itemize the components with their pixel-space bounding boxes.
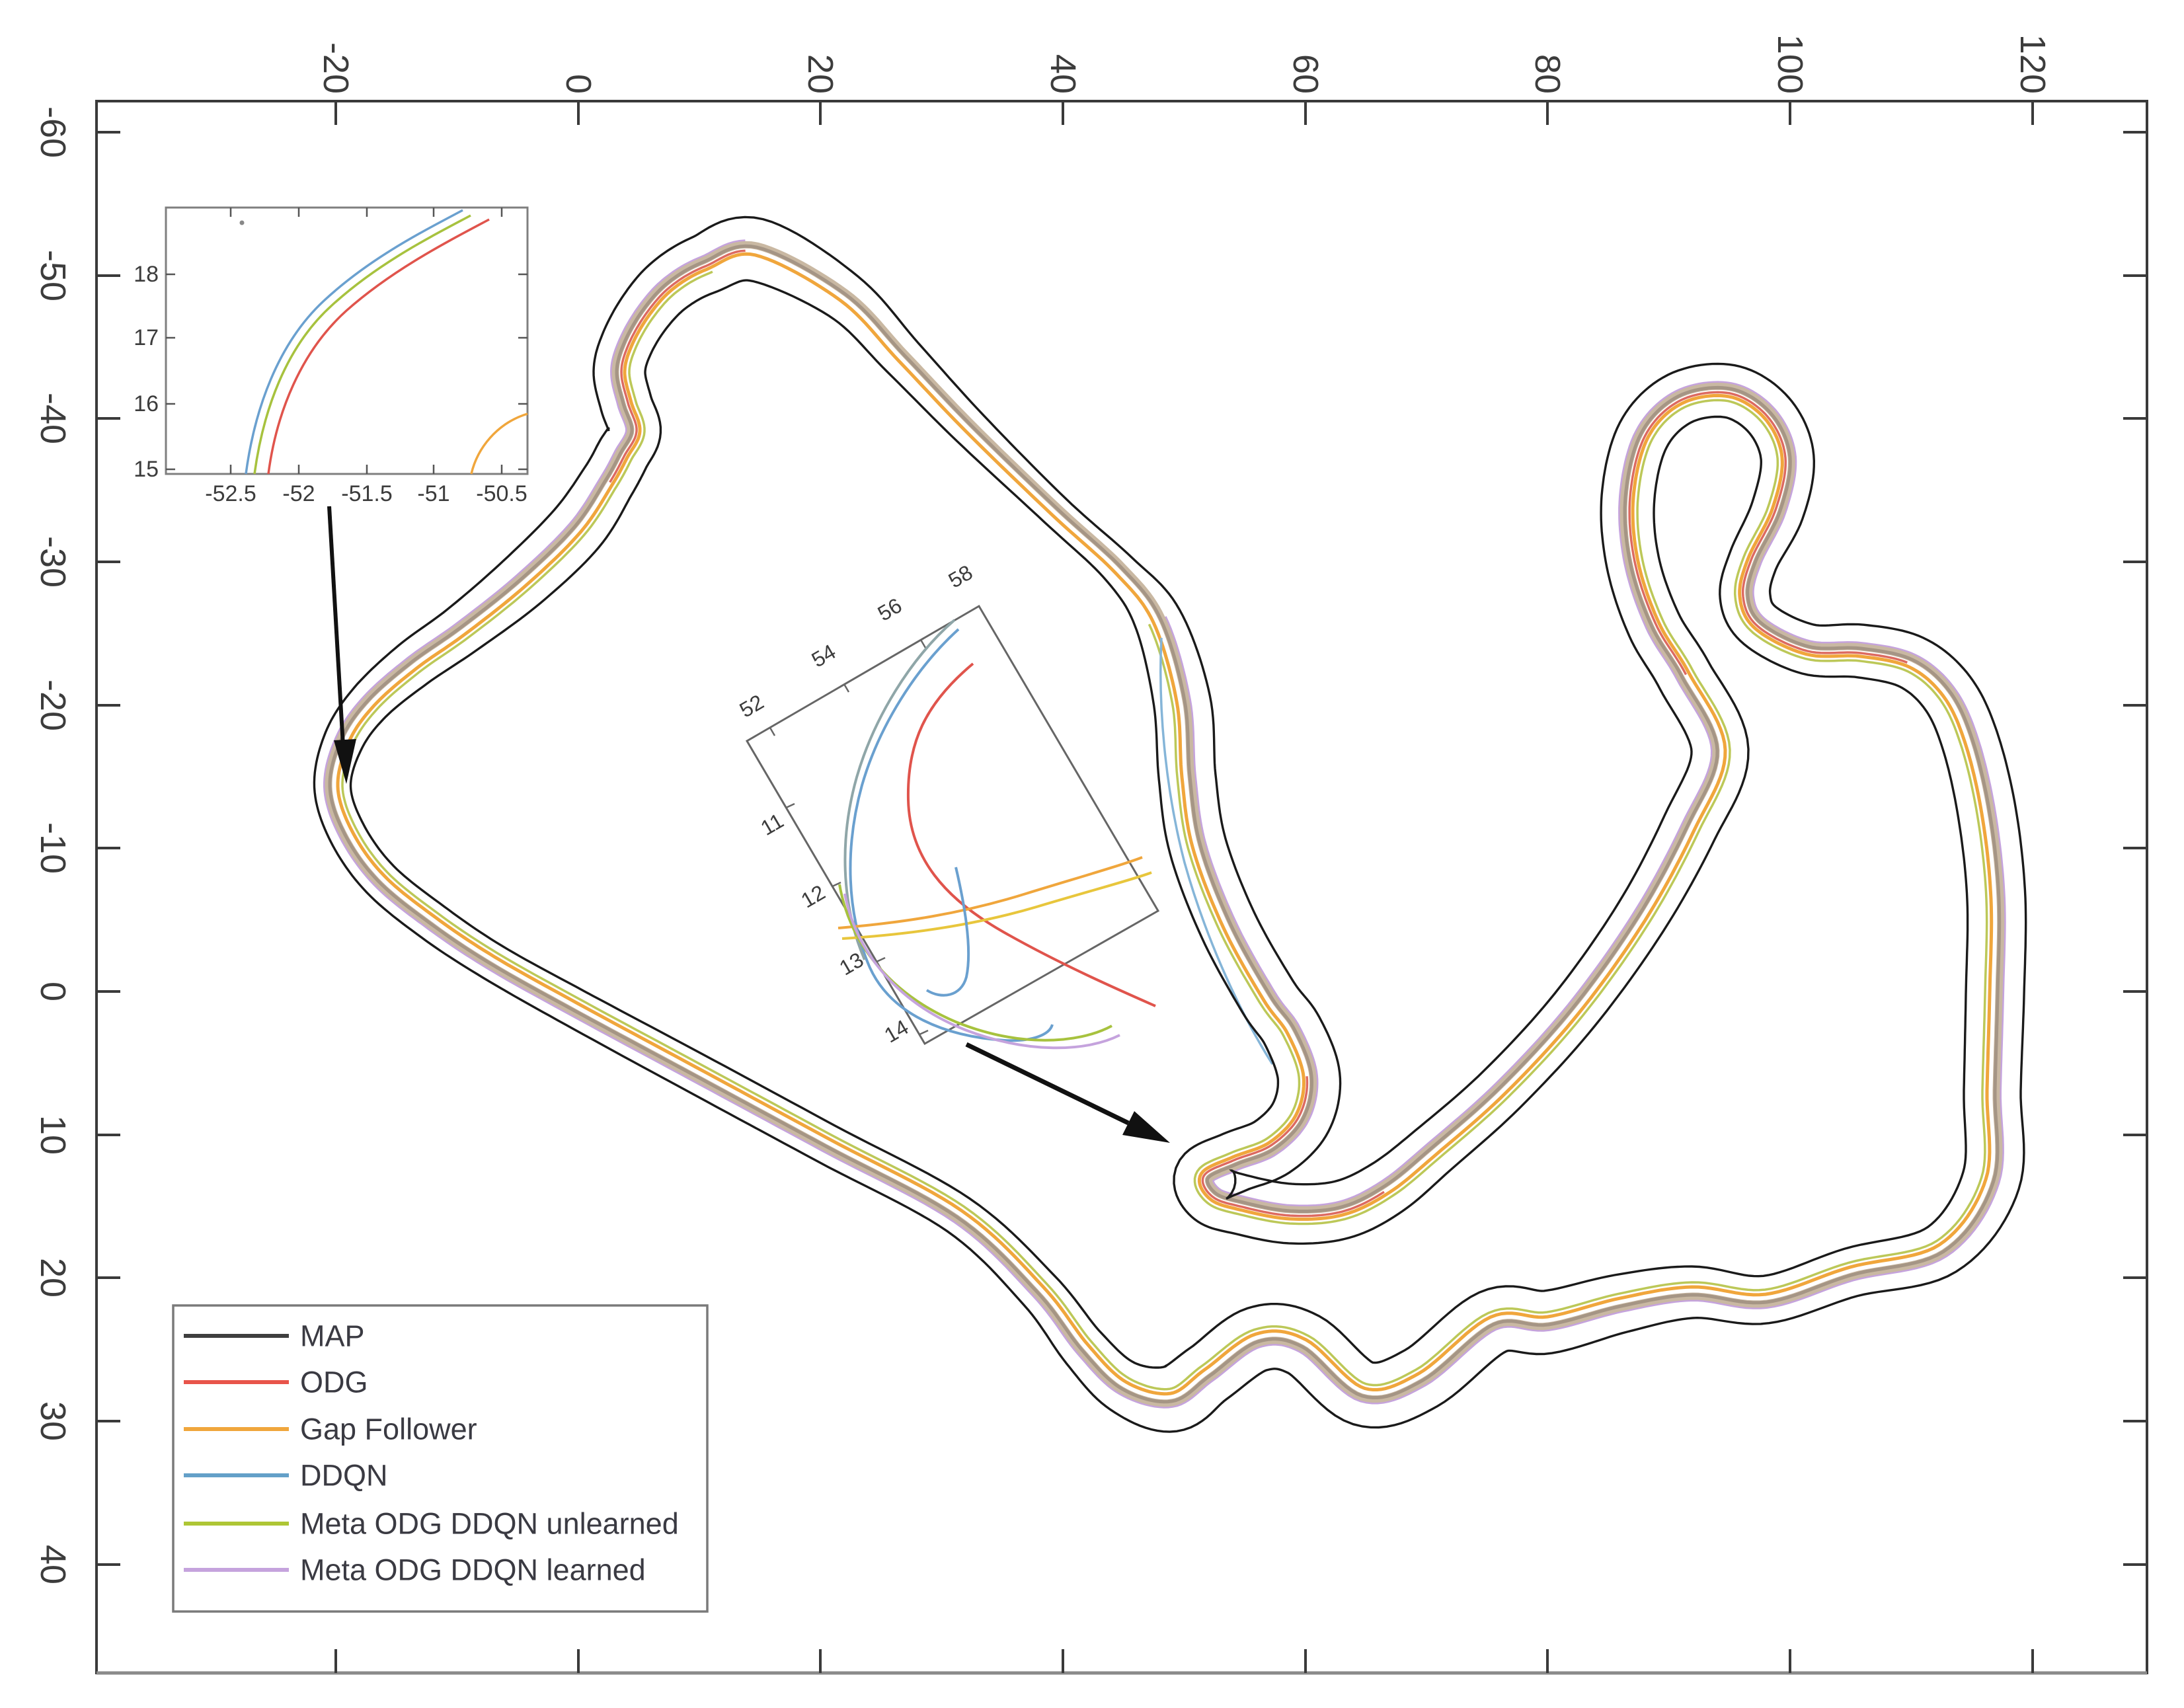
svg-text:-52: -52 bbox=[282, 481, 315, 506]
svg-text:0: 0 bbox=[33, 982, 73, 1001]
svg-text:17: 17 bbox=[134, 325, 159, 350]
svg-text:-50.5: -50.5 bbox=[476, 481, 527, 506]
svg-text:Gap Follower: Gap Follower bbox=[300, 1413, 477, 1446]
svg-text:DDQN: DDQN bbox=[300, 1459, 388, 1493]
svg-text:15: 15 bbox=[134, 457, 159, 482]
svg-text:MAP: MAP bbox=[300, 1319, 365, 1353]
svg-text:40: 40 bbox=[1043, 54, 1083, 94]
svg-text:0: 0 bbox=[559, 74, 598, 94]
svg-text:80: 80 bbox=[1528, 54, 1567, 94]
svg-text:-51: -51 bbox=[417, 481, 449, 506]
svg-text:-60: -60 bbox=[33, 106, 73, 158]
svg-text:100: 100 bbox=[1770, 34, 1810, 94]
svg-text:120: 120 bbox=[2013, 34, 2052, 94]
svg-text:20: 20 bbox=[800, 54, 840, 94]
svg-text:30: 30 bbox=[33, 1401, 73, 1441]
svg-text:Meta ODG DDQN unlearned: Meta ODG DDQN unlearned bbox=[300, 1507, 679, 1541]
svg-text:-10: -10 bbox=[33, 822, 73, 874]
svg-text:-51.5: -51.5 bbox=[341, 481, 393, 506]
svg-text:Meta ODG DDQN learned: Meta ODG DDQN learned bbox=[300, 1553, 646, 1587]
svg-text:-30: -30 bbox=[33, 536, 73, 588]
svg-text:-20: -20 bbox=[316, 42, 356, 94]
svg-text:16: 16 bbox=[134, 391, 159, 416]
svg-text:20: 20 bbox=[33, 1258, 73, 1298]
svg-text:-40: -40 bbox=[33, 393, 73, 444]
svg-text:40: 40 bbox=[33, 1545, 73, 1584]
svg-text:ODG: ODG bbox=[300, 1366, 368, 1399]
svg-text:60: 60 bbox=[1286, 54, 1325, 94]
svg-text:-52.5: -52.5 bbox=[205, 481, 256, 506]
svg-text:10: 10 bbox=[33, 1115, 73, 1155]
svg-text:18: 18 bbox=[134, 262, 159, 287]
svg-text:-20: -20 bbox=[33, 679, 73, 731]
svg-text:-50: -50 bbox=[33, 250, 73, 301]
